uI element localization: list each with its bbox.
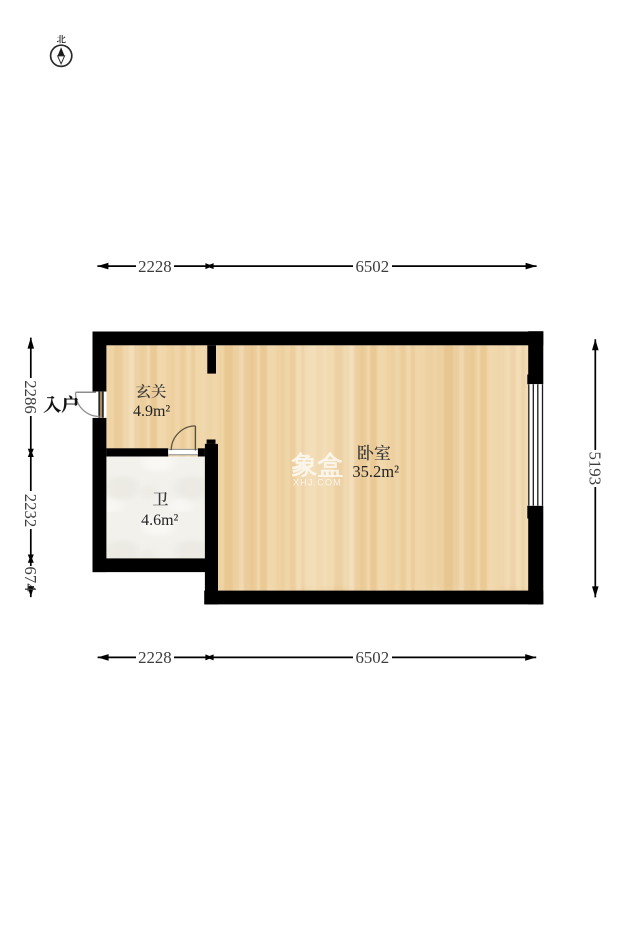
svg-text:2286: 2286: [21, 380, 40, 414]
svg-text:2232: 2232: [21, 494, 40, 528]
svg-text:4.9m²: 4.9m²: [133, 403, 170, 420]
svg-text:5193: 5193: [586, 452, 605, 486]
svg-text:6502: 6502: [356, 648, 390, 667]
svg-text:XHJ.COM: XHJ.COM: [293, 477, 342, 487]
svg-text:35.2m²: 35.2m²: [352, 462, 399, 481]
svg-text:674: 674: [21, 566, 40, 592]
svg-text:2228: 2228: [138, 648, 172, 667]
svg-text:2228: 2228: [138, 257, 172, 276]
svg-text:6502: 6502: [356, 257, 390, 276]
svg-text:4.6m²: 4.6m²: [141, 512, 178, 529]
